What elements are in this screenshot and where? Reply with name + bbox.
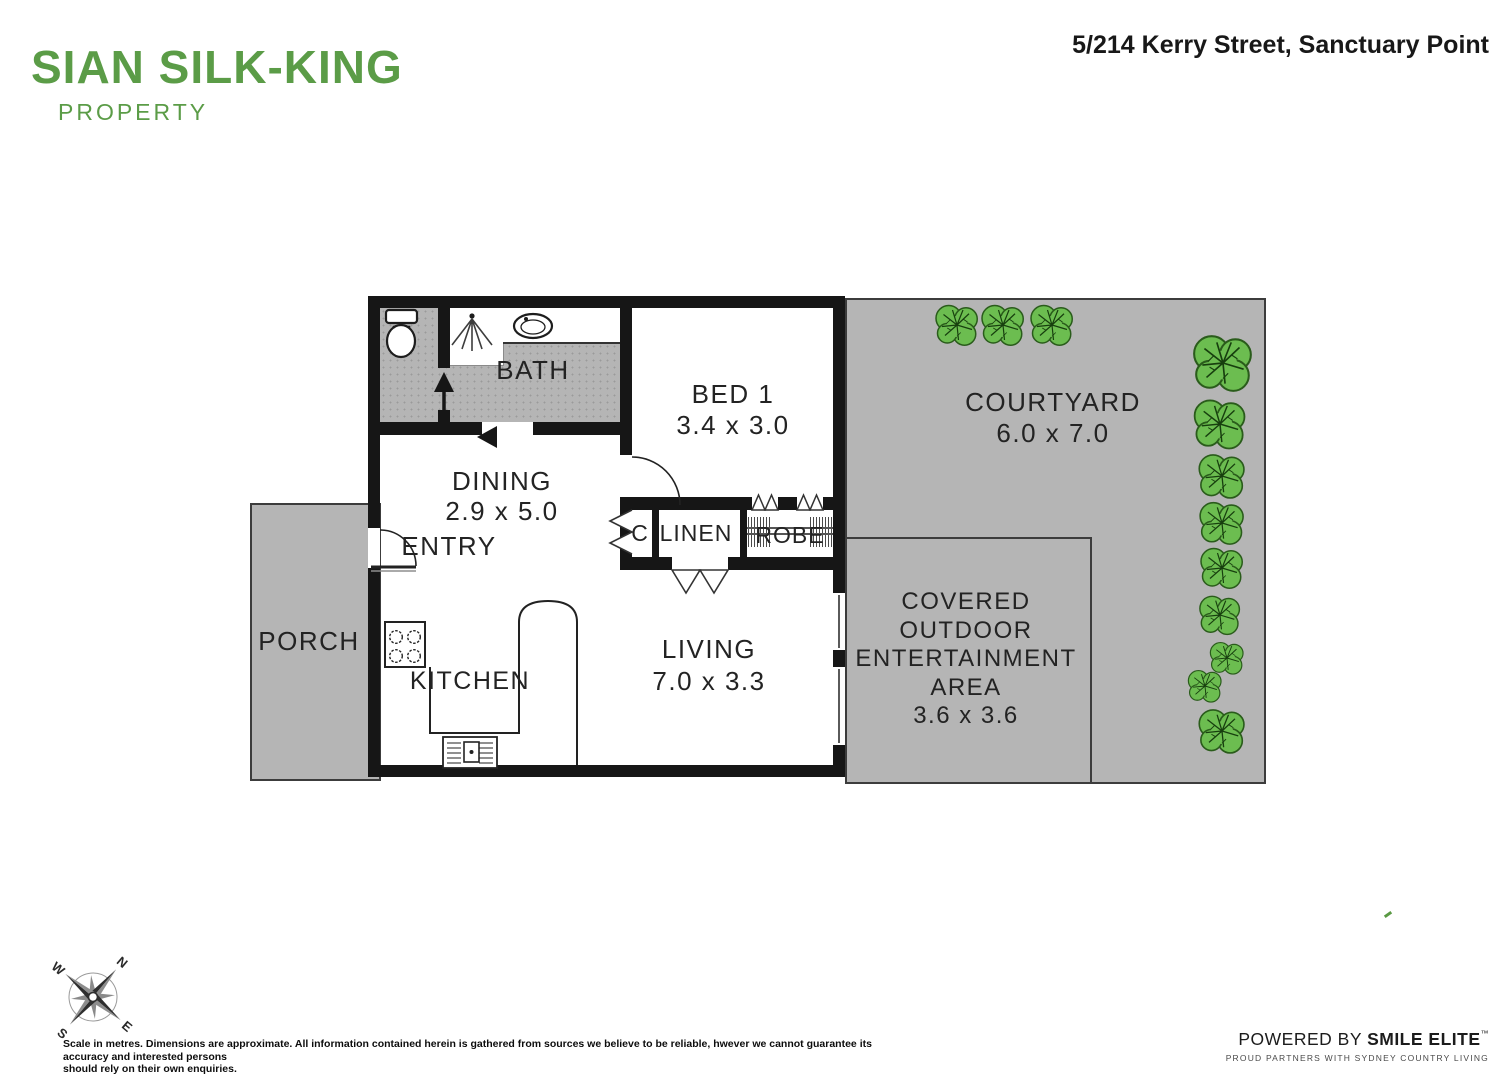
label-outdoor-line4: AREA [855, 674, 1076, 703]
powered-by-block: POWERED BY SMILE ELITE™ PROUD PARTNERS W… [1226, 1029, 1489, 1063]
disclaimer-line2: should rely on their own enquiries. [63, 1063, 903, 1076]
direction-arrow-icon [477, 426, 497, 448]
label-living: LIVING [662, 634, 756, 665]
partners-line: PROUD PARTNERS WITH SYDNEY COUNTRY LIVIN… [1226, 1053, 1489, 1063]
label-porch: PORCH [258, 626, 359, 657]
plan-graphics: N E S W [0, 0, 1508, 1080]
compass-e: E [119, 1018, 136, 1035]
label-kitchen: KITCHEN [410, 667, 530, 696]
door-arc-icon [632, 457, 680, 505]
label-bed1: BED 1 [692, 379, 775, 410]
label-bed1-dims: 3.4 x 3.0 [676, 410, 789, 441]
label-robe: ROBE [755, 522, 824, 549]
compass-n: N [114, 953, 131, 971]
label-outdoor-dims: 3.6 x 3.6 [855, 702, 1076, 731]
label-outdoor-line1: COVERED [855, 588, 1076, 617]
agency-logo-subtitle: PROPERTY [58, 99, 208, 126]
floorplan-page: SIAN SILK-KING PROPERTY 5/214 Kerry Stre… [0, 0, 1508, 1080]
robe-marker-icon [752, 495, 823, 510]
label-outdoor-line3: ENTERTAINMENT [855, 645, 1076, 674]
label-bath: BATH [496, 355, 569, 386]
trademark-mark: ™ [1481, 1029, 1490, 1038]
disclaimer-text: Scale in metres. Dimensions are approxim… [63, 1038, 903, 1076]
sink-icon [443, 737, 497, 768]
label-entry: ENTRY [401, 531, 496, 562]
bifold-door-icon [610, 510, 632, 554]
powered-prefix: POWERED BY [1238, 1029, 1367, 1049]
label-courtyard-dims: 6.0 x 7.0 [996, 418, 1109, 449]
label-closet: C [631, 520, 649, 547]
label-dining: DINING [452, 466, 552, 497]
powered-brand: SMILE ELITE [1367, 1029, 1480, 1049]
agency-logo: SIAN SILK-KING [31, 40, 403, 94]
label-linen: LINEN [660, 520, 733, 547]
label-dining-dims: 2.9 x 5.0 [445, 496, 558, 527]
direction-arrow-icon [434, 372, 454, 432]
powered-by-line: POWERED BY SMILE ELITE™ [1226, 1029, 1489, 1050]
label-outdoor-area: COVERED OUTDOOR ENTERTAINMENT AREA 3.6 x… [855, 588, 1076, 731]
label-courtyard: COURTYARD [965, 387, 1141, 418]
compass-w: W [49, 959, 69, 979]
shower-icon [452, 313, 492, 351]
basin-icon [514, 314, 552, 338]
linen-door-icon [672, 570, 728, 593]
toilet-icon [386, 310, 417, 357]
label-living-dims: 7.0 x 3.3 [652, 666, 765, 697]
disclaimer-line1: Scale in metres. Dimensions are approxim… [63, 1038, 903, 1063]
cooktop-icon [385, 622, 425, 667]
property-address: 5/214 Kerry Street, Sanctuary Point [1072, 31, 1489, 60]
label-outdoor-line2: OUTDOOR [855, 617, 1076, 646]
